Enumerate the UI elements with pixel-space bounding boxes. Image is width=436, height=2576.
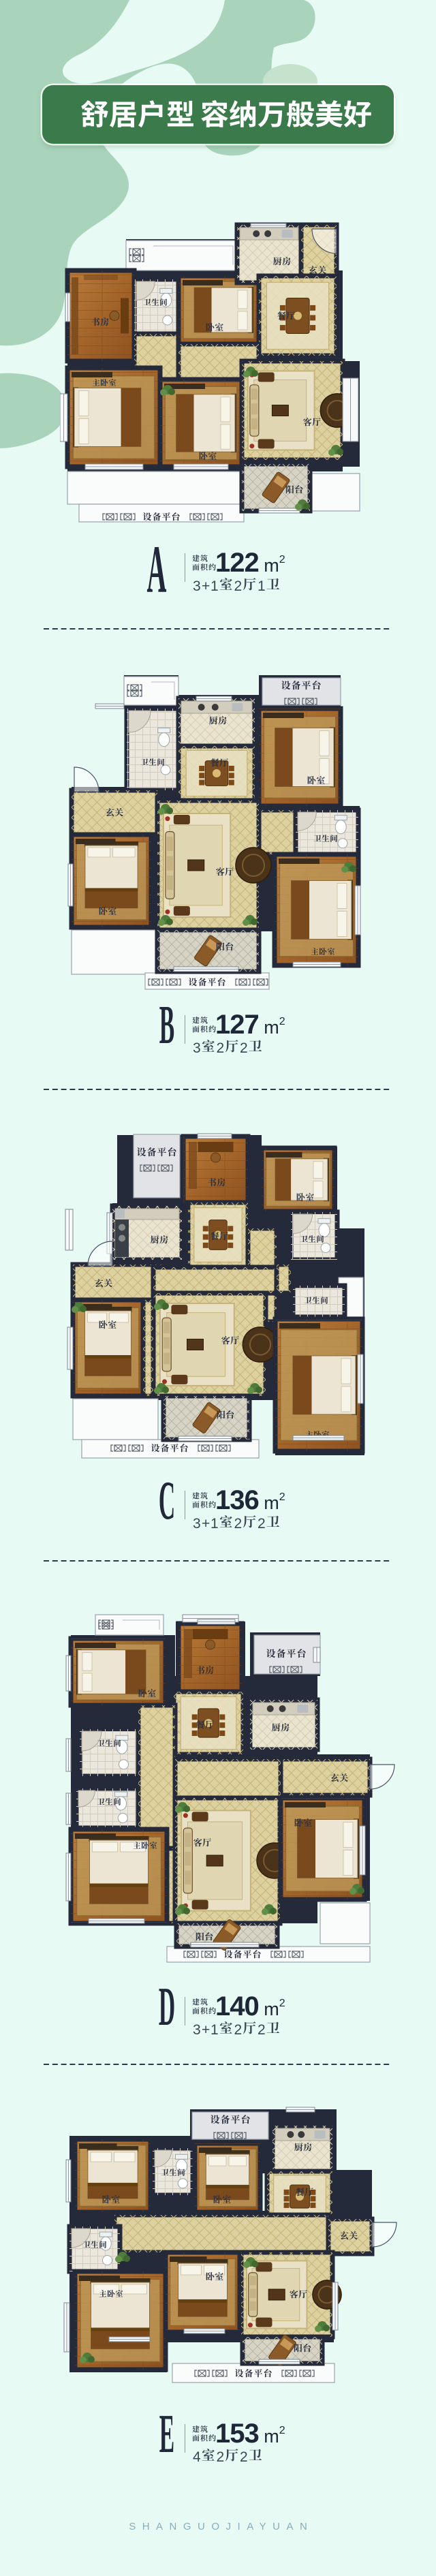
svg-text:+: + — [202, 578, 210, 594]
svg-text:+: + — [202, 1516, 210, 1532]
svg-text:2: 2 — [217, 1040, 225, 1056]
svg-text:1: 1 — [258, 578, 266, 594]
svg-text:2: 2 — [234, 2022, 243, 2038]
svg-text:1: 1 — [211, 1516, 219, 1532]
svg-text:3: 3 — [193, 2022, 201, 2038]
svg-text:4: 4 — [193, 2449, 201, 2465]
svg-text:1: 1 — [211, 578, 219, 594]
svg-text:1: 1 — [211, 2022, 219, 2038]
svg-text:3: 3 — [193, 578, 201, 594]
svg-text:2: 2 — [240, 2449, 248, 2465]
svg-text:2: 2 — [258, 1516, 266, 1532]
svg-text:2: 2 — [234, 1516, 243, 1532]
svg-text:2: 2 — [240, 1040, 248, 1056]
svg-text:3: 3 — [193, 1040, 201, 1056]
svg-text:2: 2 — [234, 578, 243, 594]
svg-text:2: 2 — [217, 2449, 225, 2465]
svg-text:3: 3 — [193, 1516, 201, 1532]
svg-text:2: 2 — [258, 2022, 266, 2038]
svg-text:+: + — [202, 2022, 210, 2038]
